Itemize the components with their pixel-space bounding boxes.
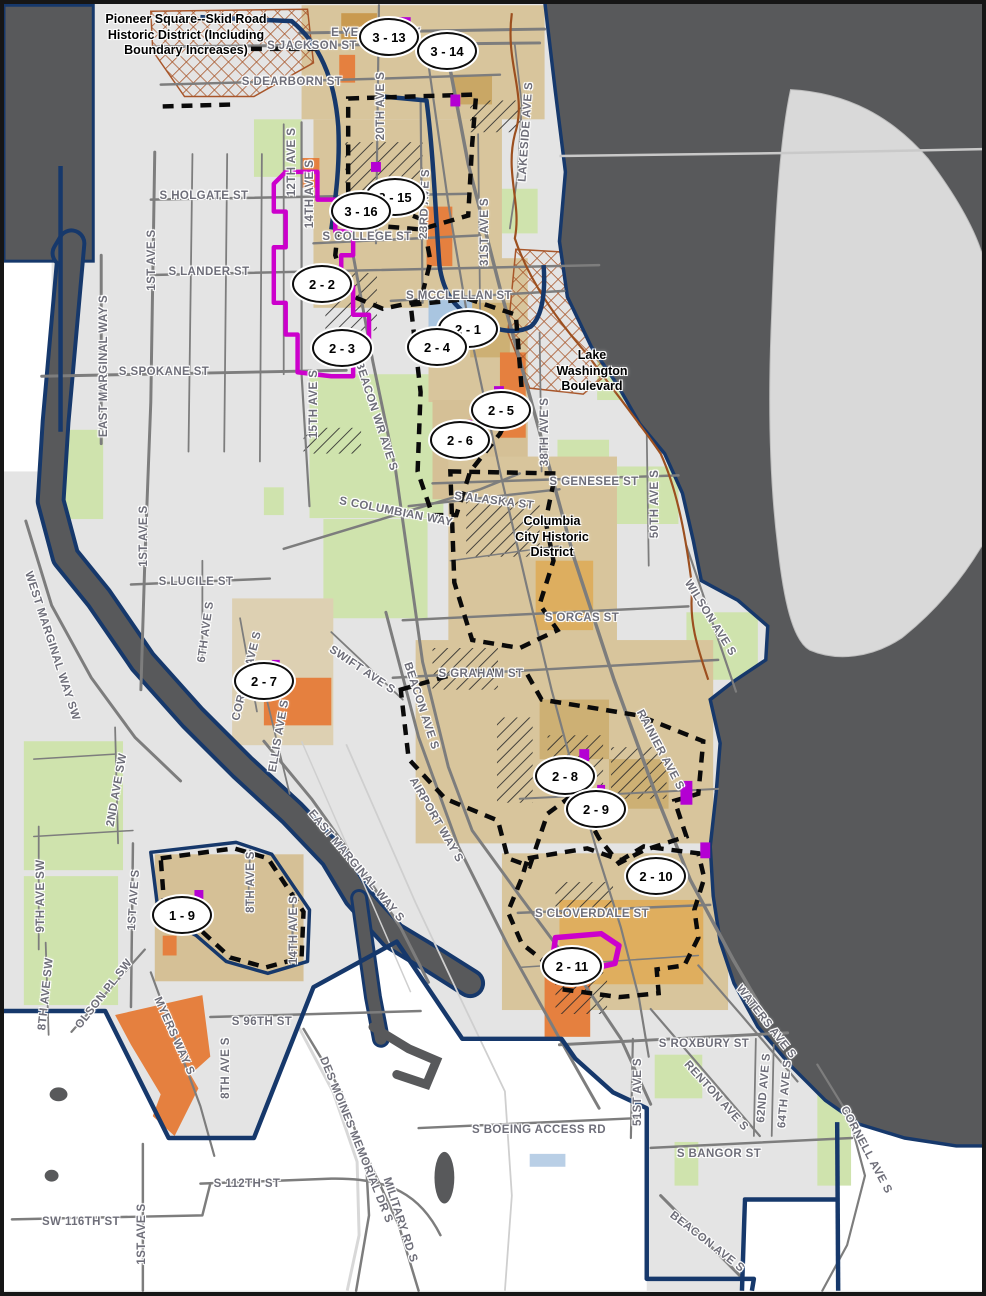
marker-2-2: 2 - 2 xyxy=(292,265,352,303)
marker-2-10: 2 - 10 xyxy=(626,857,686,895)
marker-2-11: 2 - 11 xyxy=(542,947,602,985)
basemap-svg xyxy=(4,4,982,1292)
marker-2-9: 2 - 9 xyxy=(566,790,626,828)
marker-2-8: 2 - 8 xyxy=(535,757,595,795)
marker-2-7: 2 - 7 xyxy=(234,662,294,700)
marker-3-14: 3 - 14 xyxy=(417,32,477,70)
marker-2-3: 2 - 3 xyxy=(312,329,372,367)
historic-districts-map: Pioneer Square--Skid Road Historic Distr… xyxy=(0,0,986,1296)
marker-1-9: 1 - 9 xyxy=(152,896,212,934)
marker-2-5: 2 - 5 xyxy=(471,391,531,429)
marker-3-13: 3 - 13 xyxy=(359,18,419,56)
marker-3-16: 3 - 16 xyxy=(331,192,391,230)
marker-2-4: 2 - 4 xyxy=(407,328,467,366)
marker-2-6: 2 - 6 xyxy=(430,421,490,459)
